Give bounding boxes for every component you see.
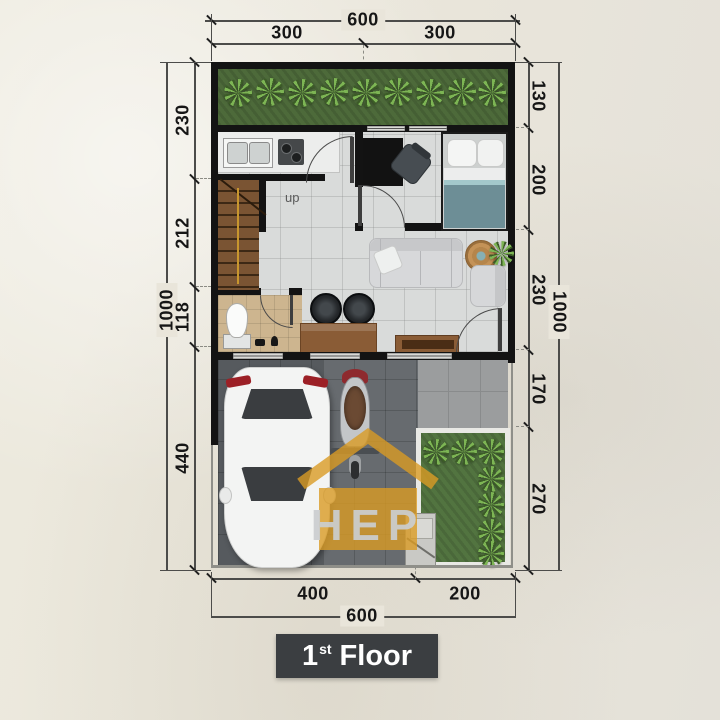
- dimension-label-right-seg1: 130: [528, 80, 549, 112]
- dimension-label-bottom-seg1: 400: [297, 584, 329, 605]
- extension-line: [160, 62, 211, 63]
- floor-title-badge: 1st Floor: [276, 634, 438, 678]
- wall-stairs: [259, 180, 266, 232]
- dining-stool: [310, 293, 342, 325]
- watermark-text: HEP: [311, 501, 425, 550]
- dimension-label-right-seg2: 200: [528, 164, 549, 196]
- dimension-label-left-seg4: 440: [173, 442, 194, 474]
- floor-ordinal: st: [319, 634, 331, 664]
- bed-pillow: [447, 139, 477, 167]
- window: [310, 353, 360, 359]
- wall-garden: [211, 125, 515, 132]
- path-line: [448, 360, 449, 428]
- extension-line: [515, 570, 562, 571]
- path-line: [418, 391, 508, 392]
- bed-blanket: [444, 185, 505, 228]
- plant-icon: [478, 492, 504, 518]
- kitchen-sink: [223, 138, 273, 168]
- extension-line-dashed: [516, 127, 529, 128]
- dining-stool: [343, 293, 375, 325]
- floorplan-sheet: 600 300 300 1000 230 212 118 440 130 200…: [0, 0, 720, 720]
- car-mirror: [219, 487, 232, 504]
- dining-table: [300, 323, 377, 353]
- dimension-label-left-seg3: 118: [173, 302, 194, 333]
- sink-basin: [249, 142, 270, 164]
- front-garden: [218, 69, 508, 125]
- dimension-label-left-seg1: 230: [173, 104, 194, 136]
- extension-line: [515, 62, 562, 63]
- wall-left: [211, 62, 218, 445]
- extension-line: [515, 572, 516, 618]
- path-line: [480, 360, 481, 428]
- plant-icon: [489, 241, 514, 266]
- stove-burner: [281, 143, 292, 154]
- plant-icon: [288, 79, 316, 107]
- bath-fixture-icon: [255, 339, 265, 346]
- dimension-line-left-segments: [194, 62, 196, 570]
- plant-icon: [352, 79, 380, 107]
- dimension-label-top-seg1: 300: [271, 23, 303, 44]
- wall-top: [211, 62, 515, 69]
- sofa-armrest: [451, 239, 462, 287]
- kitchen-stove: [278, 139, 304, 165]
- dimension-label-right-seg4: 170: [528, 373, 549, 405]
- bed-pillow: [477, 139, 504, 167]
- dimension-label-left-seg2: 212: [173, 217, 194, 249]
- bed-sheet: [444, 168, 505, 180]
- sofa-cushion-divider: [420, 251, 421, 285]
- plant-icon: [320, 78, 348, 106]
- scooter-seat: [344, 386, 366, 430]
- dimension-label-bottom-seg2: 200: [449, 584, 481, 605]
- stairs-path-line: [237, 188, 239, 284]
- floor-number: 1: [302, 634, 318, 678]
- plant-icon: [416, 79, 444, 107]
- tv-console-top: [402, 340, 454, 349]
- armchair: [470, 265, 506, 307]
- extension-line-dashed: [516, 426, 529, 427]
- side-path: [418, 360, 508, 428]
- plant-icon: [224, 79, 252, 107]
- window: [233, 353, 283, 359]
- tv-console: [395, 335, 459, 353]
- lot-boundary-left: [211, 445, 213, 566]
- extension-line: [211, 14, 212, 61]
- bed: [441, 132, 508, 231]
- plant-icon: [478, 541, 504, 567]
- floor-plan: up: [211, 62, 515, 570]
- watermark-logo: HEP: [295, 428, 441, 560]
- plant-icon: [478, 466, 504, 492]
- extension-line-dashed: [516, 349, 529, 350]
- plant-icon: [478, 79, 506, 107]
- plant-icon: [478, 439, 504, 465]
- dimension-label-bottom-total: 600: [340, 606, 384, 627]
- staircase: [218, 180, 259, 290]
- stairs-up-label: up: [285, 190, 299, 205]
- wall-bedroom-left: [355, 132, 363, 187]
- dimension-label-right-seg5: 270: [528, 483, 549, 515]
- extension-line-dashed: [516, 229, 529, 230]
- extension-line-dashed: [196, 346, 211, 347]
- dimension-label-top-seg2: 300: [424, 23, 456, 44]
- table-edge: [301, 324, 376, 331]
- extension-line: [515, 14, 516, 61]
- sofa: [369, 238, 463, 288]
- floor-word: Floor: [340, 634, 413, 678]
- bedroom-window: [409, 126, 447, 131]
- toilet-bowl: [226, 303, 248, 338]
- logo-roof: [301, 436, 435, 484]
- bedroom-window: [367, 126, 405, 131]
- dimension-line-bottom-segments: [211, 578, 515, 580]
- plant-icon: [384, 78, 412, 106]
- dimension-label-right-seg3: 230: [528, 274, 549, 306]
- extension-line: [211, 572, 212, 618]
- lot-boundary-right: [511, 363, 513, 566]
- car-rear-window: [239, 389, 315, 419]
- bath-fixture-icon: [271, 336, 278, 346]
- armchair-backrest: [495, 266, 505, 306]
- sink-basin: [227, 142, 248, 164]
- wall-right: [508, 62, 515, 363]
- dimension-label-right-total: 1000: [549, 285, 570, 339]
- plant-icon: [448, 78, 476, 106]
- extension-line-dashed: [196, 286, 211, 287]
- stove-burner: [291, 152, 302, 163]
- plant-icon: [451, 439, 477, 465]
- dimension-label-top-total: 600: [341, 10, 385, 31]
- window: [387, 353, 452, 359]
- extension-line: [160, 570, 211, 571]
- plant-icon: [256, 78, 284, 106]
- extension-line-dashed: [196, 178, 211, 179]
